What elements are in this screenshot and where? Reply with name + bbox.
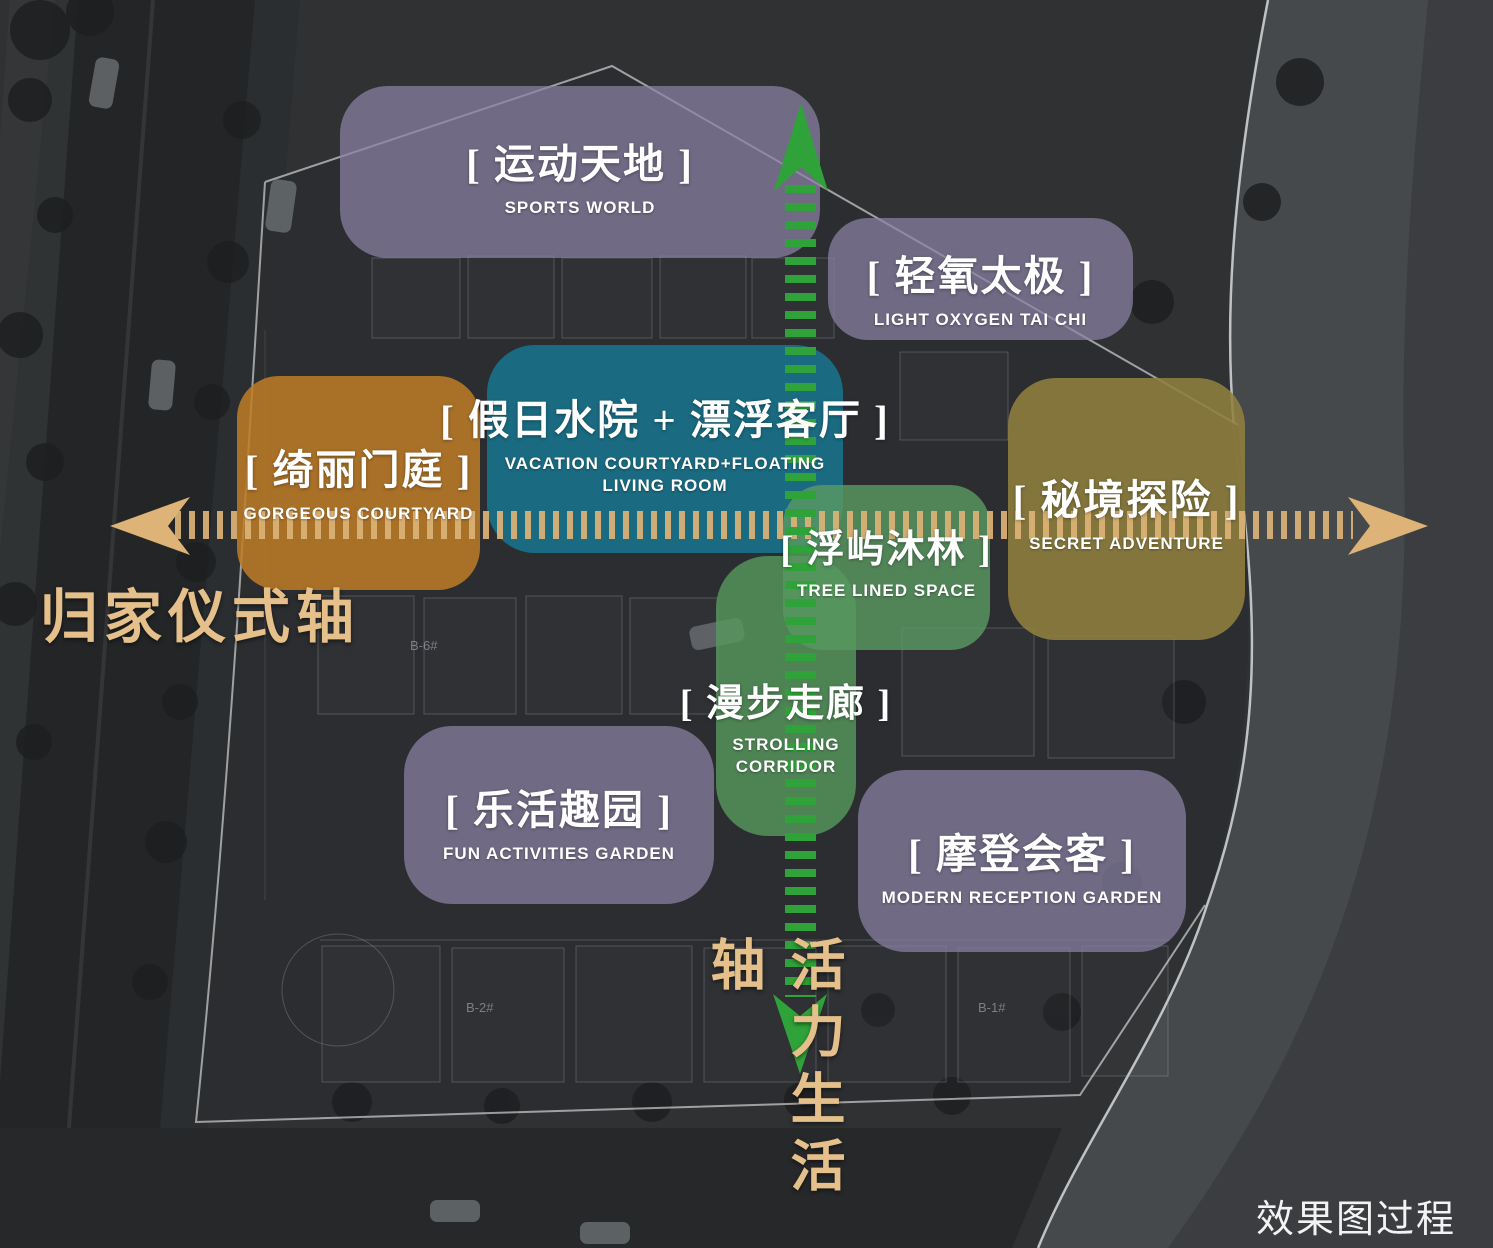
- arrow-left-icon: [110, 497, 190, 555]
- arrow-right-icon: [1348, 497, 1428, 555]
- zone-fun-activities-garden: [404, 726, 714, 904]
- watermark-text: 效果图过程稿: [1256, 1188, 1493, 1248]
- building-label-b1: B-1#: [978, 1000, 1006, 1015]
- vitality-axis-title: 活力生活轴: [692, 936, 852, 1248]
- arrow-up-icon: [774, 103, 828, 191]
- vitality-axis-dashed-line: [785, 185, 816, 997]
- zone-secret-adventure: [1008, 378, 1245, 640]
- zone-modern-reception-garden: [858, 770, 1186, 952]
- zone-light-oxygen-tai-chi: [828, 218, 1133, 340]
- building-label-b6: B-6#: [410, 638, 438, 653]
- zone-gorgeous-courtyard: [237, 376, 480, 590]
- zone-sports-world: [340, 86, 820, 258]
- homecoming-axis-dashed-line: [175, 511, 1353, 539]
- masterplan-diagram: B-2# B-6# B-1#: [0, 0, 1493, 1248]
- homecoming-axis-title: 归家仪式轴: [40, 570, 360, 654]
- building-label-b2: B-2#: [466, 1000, 494, 1015]
